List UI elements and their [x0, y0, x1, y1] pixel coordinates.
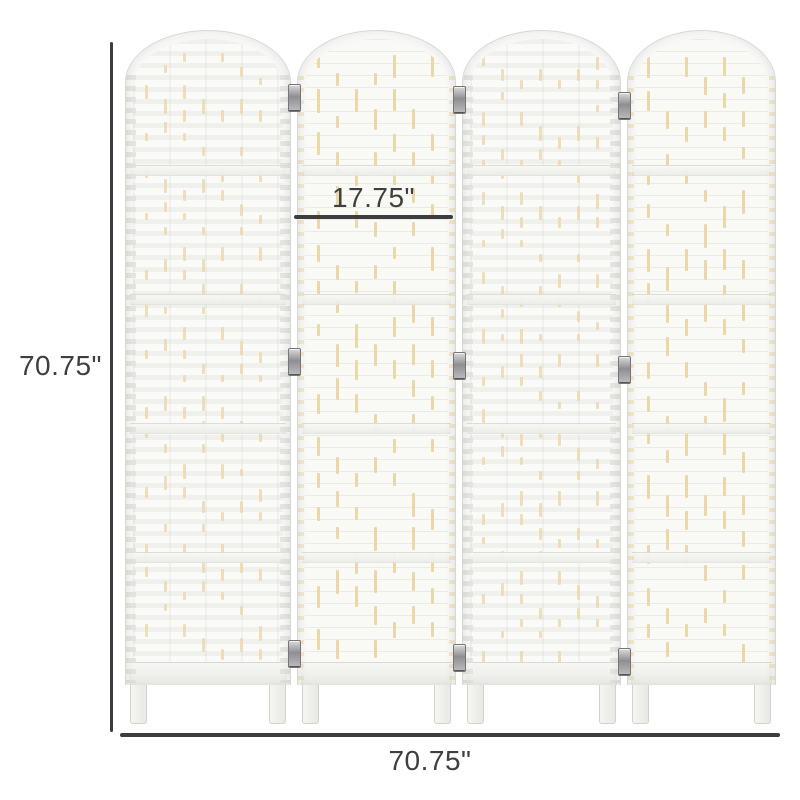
- weave-accent-dash: [520, 457, 523, 465]
- weave-accent-dash: [431, 552, 434, 572]
- weave-accent-dash: [723, 398, 726, 422]
- weave-accent-dash: [259, 626, 262, 641]
- weave-accent-dash: [596, 539, 599, 548]
- weave-accent-dash: [558, 434, 561, 446]
- panel-frame: [627, 30, 776, 685]
- panel-weave-texture: [305, 39, 448, 685]
- weave-accent-dash: [183, 350, 186, 359]
- weave-accent-dash: [221, 327, 224, 340]
- weave-accent-dash: [685, 624, 688, 637]
- panel-bottom-rail: [631, 662, 772, 685]
- panel-rail: [302, 552, 451, 563]
- weave-accent-dash: [501, 446, 504, 457]
- weave-accent-dash: [723, 249, 726, 270]
- weave-accent-dash: [259, 247, 262, 261]
- weave-accent-dash: [742, 147, 745, 159]
- weave-accent-dash: [317, 394, 320, 414]
- width-dimension-line: [120, 733, 780, 737]
- weave-accent-dash: [145, 85, 148, 99]
- weave-accent-dash: [355, 281, 358, 293]
- weave-accent-dash: [240, 227, 243, 235]
- weave-accent-dash: [240, 364, 243, 374]
- weave-accent-dash: [393, 317, 396, 337]
- hinge-middle-2: [453, 352, 466, 380]
- weave-accent-dash: [240, 67, 243, 77]
- weave-accent-dash: [501, 286, 504, 299]
- weave-accent-dash: [240, 99, 243, 114]
- weave-accent-dash: [259, 512, 262, 521]
- weave-accent-dash: [183, 544, 186, 558]
- weave-accent-dash: [355, 324, 358, 348]
- panel-leg: [269, 683, 286, 724]
- weave-accent-dash: [666, 495, 669, 517]
- weave-accent-dash: [742, 111, 745, 127]
- weave-accent-dash: [742, 190, 745, 214]
- weave-accent-dash: [685, 319, 688, 336]
- weave-accent-dash: [336, 73, 339, 86]
- weave-accent-dash: [183, 110, 186, 122]
- weave-accent-dash: [539, 334, 542, 341]
- weave-accent-dash: [558, 354, 561, 367]
- room-divider-dimension-diagram: 70.75" 70.75" 17.75": [0, 0, 800, 800]
- weave-accent-dash: [317, 132, 320, 155]
- weave-accent-dash: [431, 439, 434, 452]
- weave-accent-dash: [577, 471, 580, 480]
- weave-accent-dash: [482, 377, 485, 386]
- weave-accent-dash: [202, 396, 205, 411]
- weave-accent-dash: [431, 360, 434, 378]
- panel-leg: [632, 683, 649, 724]
- weave-accent-dash: [336, 299, 339, 313]
- panel-rail: [302, 294, 451, 305]
- weave-accent-dash: [539, 149, 542, 160]
- weave-accent-dash: [317, 437, 320, 456]
- weave-accent-dash: [202, 99, 205, 114]
- weave-accent-dash: [558, 137, 561, 149]
- weave-accent-dash: [317, 586, 320, 608]
- weave-accent-dash: [221, 407, 224, 419]
- weave-accent-dash: [577, 585, 580, 600]
- weave-accent-dash: [685, 475, 688, 498]
- weave-accent-dash: [240, 469, 243, 476]
- weave-accent-dash: [520, 491, 523, 506]
- weave-accent-dash: [666, 642, 669, 657]
- weave-accent-dash: [317, 281, 320, 294]
- hinge-bottom-2: [453, 644, 466, 672]
- weave-accent-dash: [336, 344, 339, 367]
- weave-accent-dash: [221, 53, 224, 62]
- weave-accent-dash: [647, 545, 650, 564]
- weave-accent-dash: [723, 57, 726, 76]
- weave-accent-dash: [221, 592, 224, 600]
- panel-rail: [130, 165, 286, 176]
- weave-accent-dash: [412, 527, 415, 550]
- weave-accent-dash: [202, 581, 205, 592]
- weave-accent-dash: [145, 165, 148, 178]
- weave-accent-dash: [742, 495, 745, 515]
- weave-accent-dash: [183, 487, 186, 498]
- weave-accent-dash: [145, 350, 148, 359]
- panel-bottom-rail: [129, 662, 287, 685]
- weave-accent-dash: [336, 457, 339, 474]
- weave-accent-dash: [336, 152, 339, 173]
- weave-accent-dash: [501, 503, 504, 517]
- weave-accent-dash: [202, 524, 205, 532]
- weave-accent-dash: [596, 80, 599, 89]
- panel-rail: [130, 423, 286, 434]
- weave-accent-dash: [221, 247, 224, 261]
- hinge-bottom-3: [618, 648, 631, 676]
- weave-accent-dash: [259, 432, 262, 442]
- weave-accent-dash: [539, 391, 542, 401]
- weave-accent-dash: [647, 249, 650, 272]
- weave-accent-dash: [221, 295, 224, 303]
- panel-rail: [467, 552, 616, 563]
- hinge-top-2: [453, 86, 466, 114]
- width-dimension-label: 70.75": [330, 745, 530, 777]
- weave-accent-dash: [393, 281, 396, 305]
- weave-accent-dash: [202, 284, 205, 295]
- divider-panel-3: [462, 30, 621, 724]
- weave-accent-dash: [558, 80, 561, 89]
- weave-accent-dash: [221, 190, 224, 201]
- weave-accent-dash: [520, 434, 523, 446]
- weave-accent-dash: [374, 527, 377, 551]
- weave-accent-dash: [259, 110, 262, 122]
- weave-accent-dash: [355, 507, 358, 520]
- weave-accent-dash: [355, 360, 358, 380]
- weave-accent-dash: [259, 215, 262, 224]
- weave-accent-dash: [145, 213, 148, 220]
- weave-accent-dash: [520, 112, 523, 126]
- weave-accent-dash: [317, 324, 320, 336]
- weave-accent-dash: [501, 631, 504, 638]
- weave-edge-right: [280, 75, 290, 683]
- weave-accent-dash: [596, 57, 599, 70]
- weave-accent-dash: [183, 592, 186, 600]
- weave-accent-dash: [431, 247, 434, 271]
- weave-accent-dash: [374, 152, 377, 172]
- weave-accent-dash: [520, 297, 523, 307]
- weave-accent-dash: [742, 565, 745, 580]
- weave-accent-dash: [577, 311, 580, 322]
- weave-accent-dash: [240, 558, 243, 573]
- weave-accent-dash: [596, 354, 599, 367]
- weave-accent-dash: [596, 459, 599, 469]
- weave-accent-dash: [558, 491, 561, 506]
- weave-accent-dash: [221, 375, 224, 382]
- weave-accent-dash: [259, 78, 262, 85]
- weave-accent-dash: [723, 511, 726, 529]
- weave-accent-dash: [221, 544, 224, 558]
- weave-accent-dash: [240, 421, 243, 434]
- weave-accent-dash: [431, 317, 434, 336]
- weave-accent-dash: [539, 126, 542, 141]
- weave-accent-dash: [202, 421, 205, 434]
- weave-accent-dash: [685, 127, 688, 142]
- weave-accent-dash: [221, 110, 224, 122]
- weave-accent-dash: [742, 339, 745, 353]
- weave-accent-dash: [596, 619, 599, 627]
- weave-accent-dash: [520, 217, 523, 228]
- weave-accent-dash: [164, 99, 167, 114]
- weave-accent-dash: [221, 464, 224, 479]
- panel-rail: [632, 423, 771, 434]
- weave-accent-dash: [647, 475, 650, 499]
- weave-accent-dash: [164, 339, 167, 351]
- weave-accent-dash: [539, 551, 542, 559]
- weave-accent-dash: [412, 109, 415, 129]
- panel-rail: [632, 294, 771, 305]
- weave-accent-dash: [183, 247, 186, 261]
- weave-accent-dash: [183, 133, 186, 141]
- weave-accent-dash: [520, 651, 523, 664]
- weave-accent-dash: [647, 432, 650, 444]
- weave-accent-dash: [336, 527, 339, 539]
- weave-accent-dash: [558, 274, 561, 288]
- weave-accent-dash: [145, 487, 148, 498]
- weave-accent-dash: [202, 558, 205, 573]
- weave-edge-right: [769, 75, 775, 683]
- weave-accent-dash: [596, 322, 599, 330]
- weave-accent-dash: [393, 55, 396, 78]
- weave-accent-dash: [520, 377, 523, 386]
- divider-panel-2: [297, 30, 456, 724]
- panel-frame: [125, 30, 291, 685]
- weave-accent-dash: [412, 380, 415, 397]
- panel-leg: [467, 683, 484, 724]
- weave-accent-dash: [539, 503, 542, 517]
- weave-accent-dash: [431, 588, 434, 604]
- weave-accent-dash: [704, 303, 707, 322]
- weave-accent-dash: [393, 473, 396, 486]
- weave-accent-dash: [577, 334, 580, 341]
- weave-accent-dash: [558, 571, 561, 585]
- weave-accent-dash: [596, 596, 599, 608]
- weave-accent-dash: [723, 93, 726, 108]
- weave-accent-dash: [666, 529, 669, 550]
- weave-accent-dash: [539, 206, 542, 220]
- weave-accent-dash: [596, 217, 599, 228]
- weave-accent-dash: [647, 170, 650, 185]
- weave-accent-dash: [558, 539, 561, 548]
- weave-accent-dash: [336, 378, 339, 400]
- weave-accent-dash: [723, 127, 726, 141]
- weave-accent-dash: [183, 85, 186, 99]
- weave-accent-dash: [558, 402, 561, 409]
- weave-accent-dash: [558, 619, 561, 627]
- panel-rail: [302, 165, 451, 176]
- weave-accent-dash: [412, 572, 415, 591]
- weave-accent-dash: [666, 111, 669, 129]
- panel-leg: [302, 683, 319, 724]
- weave-accent-dash: [240, 638, 243, 652]
- weave-accent-dash: [221, 569, 224, 581]
- weave-accent-dash: [723, 590, 726, 603]
- panel-rail: [130, 294, 286, 305]
- weave-accent-dash: [393, 89, 396, 111]
- weave-accent-dash: [666, 337, 669, 356]
- weave-accent-dash: [577, 254, 580, 262]
- weave-accent-dash: [145, 407, 148, 419]
- weave-accent-dash: [723, 432, 726, 455]
- weave-accent-dash: [393, 134, 396, 152]
- weave-accent-dash: [145, 430, 148, 438]
- weave-accent-dash: [704, 565, 707, 581]
- weave-accent-dash: [723, 285, 726, 302]
- panel-rail: [632, 552, 771, 563]
- weave-accent-dash: [259, 569, 262, 581]
- panel-frame: [297, 30, 456, 685]
- weave-accent-dash: [482, 55, 485, 66]
- weave-accent-dash: [183, 464, 186, 479]
- weave-accent-dash: [520, 514, 523, 525]
- weave-accent-dash: [501, 206, 504, 220]
- weave-accent-dash: [431, 509, 434, 530]
- weave-accent-dash: [374, 606, 377, 625]
- weave-accent-dash: [374, 414, 377, 431]
- panel-rail: [467, 423, 616, 434]
- weave-accent-dash: [647, 283, 650, 305]
- divider-panel-4: [627, 30, 776, 724]
- weave-accent-dash: [412, 606, 415, 624]
- weave-accent-dash: [183, 213, 186, 220]
- hinge-middle-3: [618, 356, 631, 384]
- weave-accent-dash: [482, 409, 485, 423]
- weave-accent-dash: [558, 217, 561, 228]
- weave-accent-dash: [685, 170, 688, 184]
- weave-accent-dash: [647, 91, 650, 111]
- weave-accent-dash: [501, 366, 504, 378]
- weave-accent-dash: [577, 448, 580, 461]
- weave-accent-dash: [666, 416, 669, 430]
- weave-accent-dash: [164, 122, 167, 133]
- weave-accent-dash: [520, 80, 523, 89]
- weave-accent-dash: [431, 622, 434, 637]
- weave-accent-dash: [393, 360, 396, 379]
- panel-rail: [632, 165, 771, 176]
- weave-accent-dash: [202, 179, 205, 193]
- weave-accent-dash: [412, 493, 415, 517]
- weave-accent-dash: [164, 307, 167, 314]
- weave-accent-dash: [704, 608, 707, 623]
- weave-accent-dash: [647, 396, 650, 412]
- panel-width-dimension-label: 17.75": [294, 182, 453, 214]
- weave-accent-dash: [317, 53, 320, 68]
- weave-accent-dash: [685, 432, 688, 456]
- weave-accent-dash: [412, 222, 415, 236]
- panel-leg: [130, 683, 147, 724]
- weave-accent-dash: [482, 594, 485, 604]
- weave-accent-dash: [393, 622, 396, 638]
- weave-accent-dash: [259, 295, 262, 303]
- weave-accent-dash: [431, 134, 434, 151]
- weave-accent-dash: [539, 69, 542, 81]
- weave-accent-dash: [577, 391, 580, 401]
- weave-accent-dash: [482, 112, 485, 126]
- height-dimension-line: [110, 42, 113, 732]
- weave-accent-dash: [221, 167, 224, 182]
- weave-accent-dash: [704, 190, 707, 202]
- weave-accent-dash: [374, 73, 377, 85]
- panel-rail: [467, 294, 616, 305]
- panel-leg: [599, 683, 616, 724]
- weave-accent-dash: [482, 329, 485, 344]
- weave-accent-dash: [317, 507, 320, 521]
- weave-accent-dash: [666, 224, 669, 236]
- weave-accent-dash: [742, 77, 745, 94]
- weave-accent-dash: [482, 240, 485, 247]
- weave-accent-dash: [596, 194, 599, 209]
- weave-accent-dash: [723, 319, 726, 335]
- weave-accent-dash: [355, 473, 358, 487]
- weave-accent-dash: [240, 147, 243, 156]
- weave-accent-dash: [520, 192, 523, 205]
- weave-accent-dash: [596, 402, 599, 409]
- weave-accent-dash: [742, 644, 745, 667]
- weave-accent-dash: [202, 227, 205, 235]
- weave-accent-dash: [145, 624, 148, 637]
- weave-accent-dash: [183, 327, 186, 340]
- weave-accent-dash: [374, 222, 377, 237]
- weave-accent-dash: [577, 174, 580, 183]
- weave-accent-dash: [501, 583, 504, 596]
- weave-accent-dash: [666, 154, 669, 171]
- weave-accent-dash: [539, 608, 542, 619]
- weave-accent-dash: [501, 551, 504, 559]
- weave-accent-dash: [202, 364, 205, 374]
- weave-accent-dash: [577, 206, 580, 220]
- panel-rail: [130, 552, 286, 563]
- weave-accent-dash: [355, 552, 358, 574]
- weave-accent-dash: [336, 265, 339, 280]
- weave-accent-dash: [501, 229, 504, 239]
- weave-accent-dash: [520, 240, 523, 247]
- weave-accent-dash: [742, 531, 745, 547]
- weave-accent-dash: [482, 160, 485, 168]
- weave-accent-dash: [393, 552, 396, 573]
- weave-accent-dash: [596, 274, 599, 288]
- weave-accent-dash: [183, 624, 186, 637]
- panel-leg: [754, 683, 771, 724]
- panel-bottom-rail: [301, 662, 452, 685]
- weave-accent-dash: [539, 528, 542, 540]
- weave-accent-dash: [501, 172, 504, 179]
- weave-accent-dash: [336, 491, 339, 507]
- weave-accent-dash: [145, 544, 148, 558]
- panel-leg: [434, 683, 451, 724]
- weave-accent-dash: [704, 111, 707, 128]
- weave-accent-dash: [145, 133, 148, 141]
- weave-accent-dash: [183, 53, 186, 62]
- weave-accent-dash: [482, 135, 485, 145]
- weave-accent-dash: [355, 394, 358, 413]
- weave-accent-dash: [412, 152, 415, 171]
- weave-accent-dash: [482, 651, 485, 664]
- weave-accent-dash: [317, 245, 320, 262]
- weave-accent-dash: [164, 476, 167, 490]
- weave-accent-dash: [374, 344, 377, 366]
- weave-accent-dash: [647, 57, 650, 78]
- divider-panel-1: [125, 30, 291, 724]
- weave-accent-dash: [240, 501, 243, 513]
- panel-weave-texture: [470, 39, 613, 685]
- weave-accent-dash: [431, 396, 434, 410]
- weave-accent-dash: [558, 297, 561, 307]
- weave-accent-dash: [577, 126, 580, 141]
- weave-accent-dash: [539, 631, 542, 638]
- weave-accent-dash: [666, 267, 669, 291]
